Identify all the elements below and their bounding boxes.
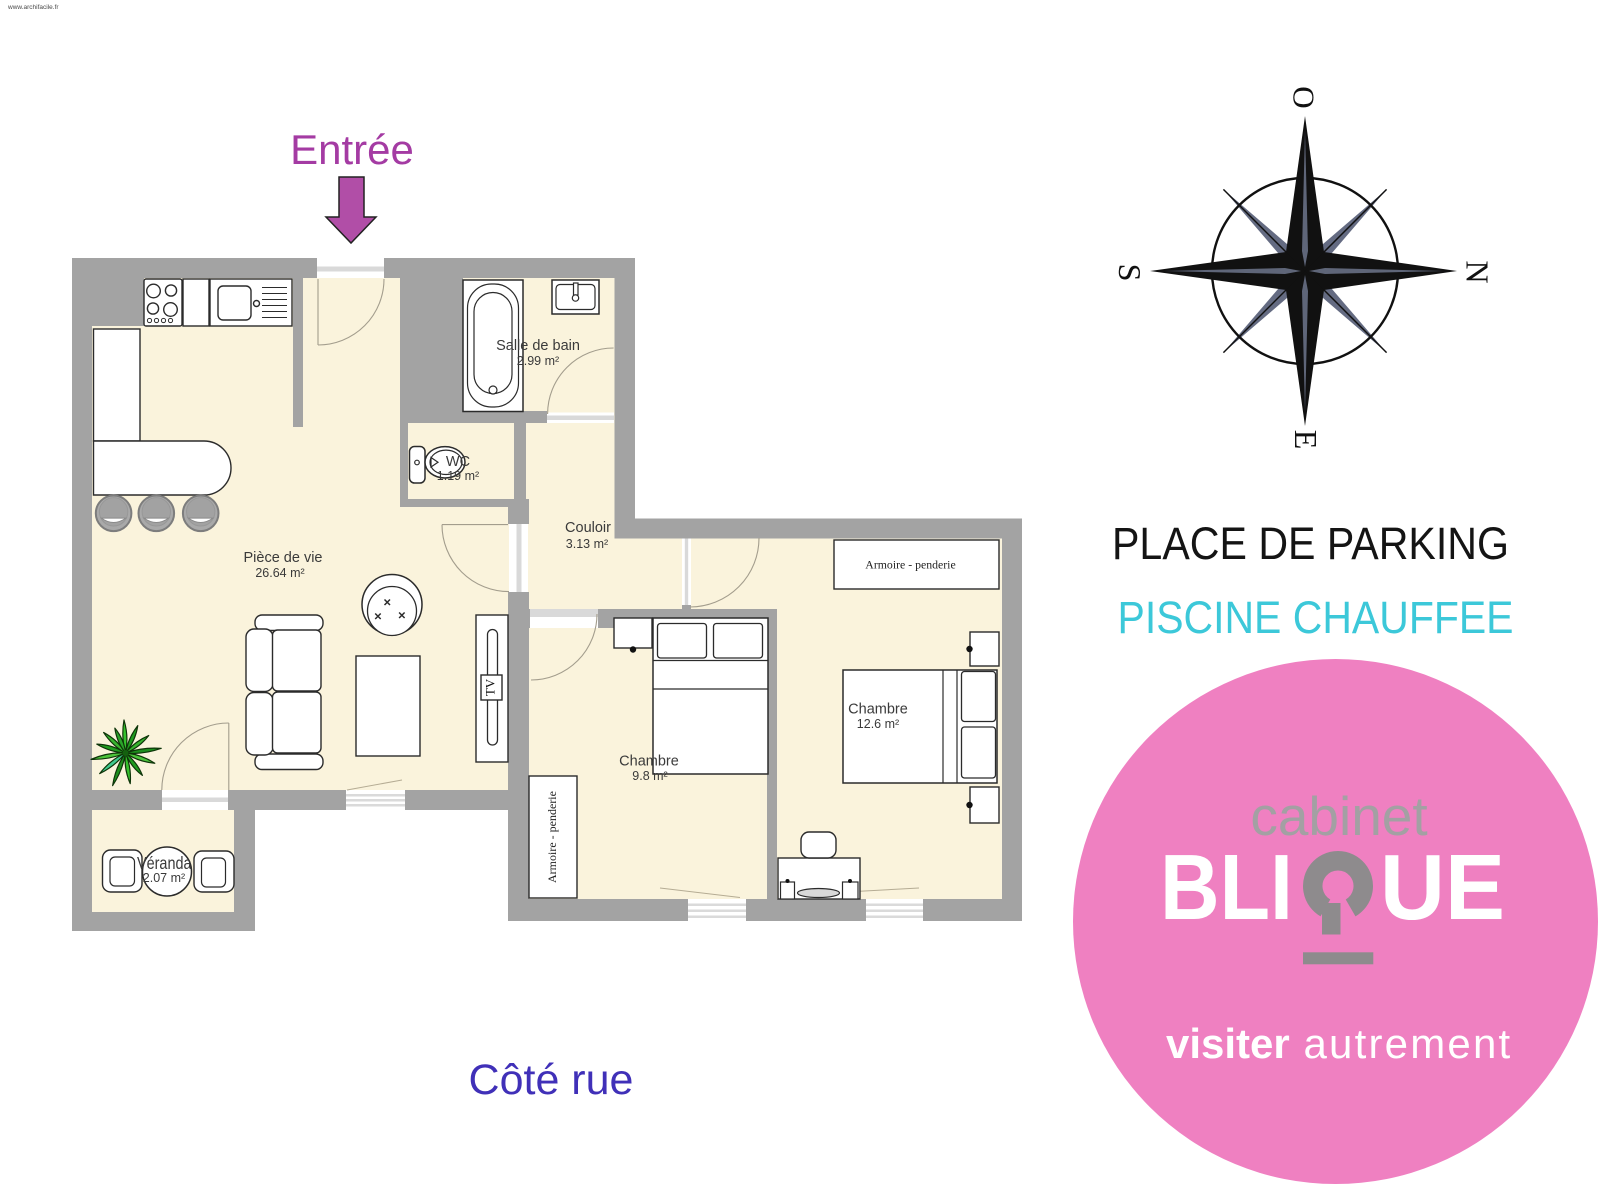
svg-text:2.99 m²: 2.99 m²	[517, 354, 559, 368]
svg-text:BLI: BLI	[1160, 835, 1293, 939]
svg-text:O: O	[1287, 86, 1322, 108]
svg-text:PISCINE CHAUFFEE: PISCINE CHAUFFEE	[1118, 592, 1514, 643]
svg-text:N: N	[1460, 260, 1496, 283]
svg-text:9.8 m²: 9.8 m²	[632, 769, 667, 783]
svg-text:Armoire - penderie: Armoire - penderie	[545, 791, 559, 883]
svg-text:E: E	[1288, 430, 1324, 450]
svg-text:12.6 m²: 12.6 m²	[857, 717, 899, 731]
svg-text:S: S	[1112, 264, 1148, 282]
svg-text:Côté rue: Côté rue	[469, 1056, 634, 1104]
svg-text:www.archifacile.fr: www.archifacile.fr	[7, 4, 59, 11]
svg-text:Chambre: Chambre	[619, 754, 679, 770]
svg-text:Couloir: Couloir	[565, 520, 611, 536]
svg-text:TV: TV	[482, 678, 497, 696]
svg-text:2.07 m²: 2.07 m²	[143, 871, 185, 885]
svg-text:UE: UE	[1380, 835, 1505, 939]
svg-text:26.64 m²: 26.64 m²	[255, 566, 304, 580]
svg-text:WC: WC	[446, 454, 470, 470]
svg-text:Véranda: Véranda	[137, 853, 192, 873]
svg-text:3.13 m²: 3.13 m²	[566, 537, 608, 551]
svg-text:Chambre: Chambre	[848, 702, 908, 718]
svg-text:visiter: visiter	[1166, 1020, 1290, 1067]
svg-text:1.19 m²: 1.19 m²	[437, 469, 479, 483]
svg-text:Armoire - penderie: Armoire - penderie	[865, 558, 955, 572]
svg-text:Entrée: Entrée	[290, 126, 414, 173]
svg-text:Salle de bain: Salle de bain	[496, 338, 580, 354]
svg-text:PLACE DE PARKING: PLACE DE PARKING	[1112, 518, 1509, 569]
svg-text:Pièce de vie: Pièce de vie	[244, 550, 323, 566]
svg-text:autrement: autrement	[1304, 1020, 1513, 1067]
